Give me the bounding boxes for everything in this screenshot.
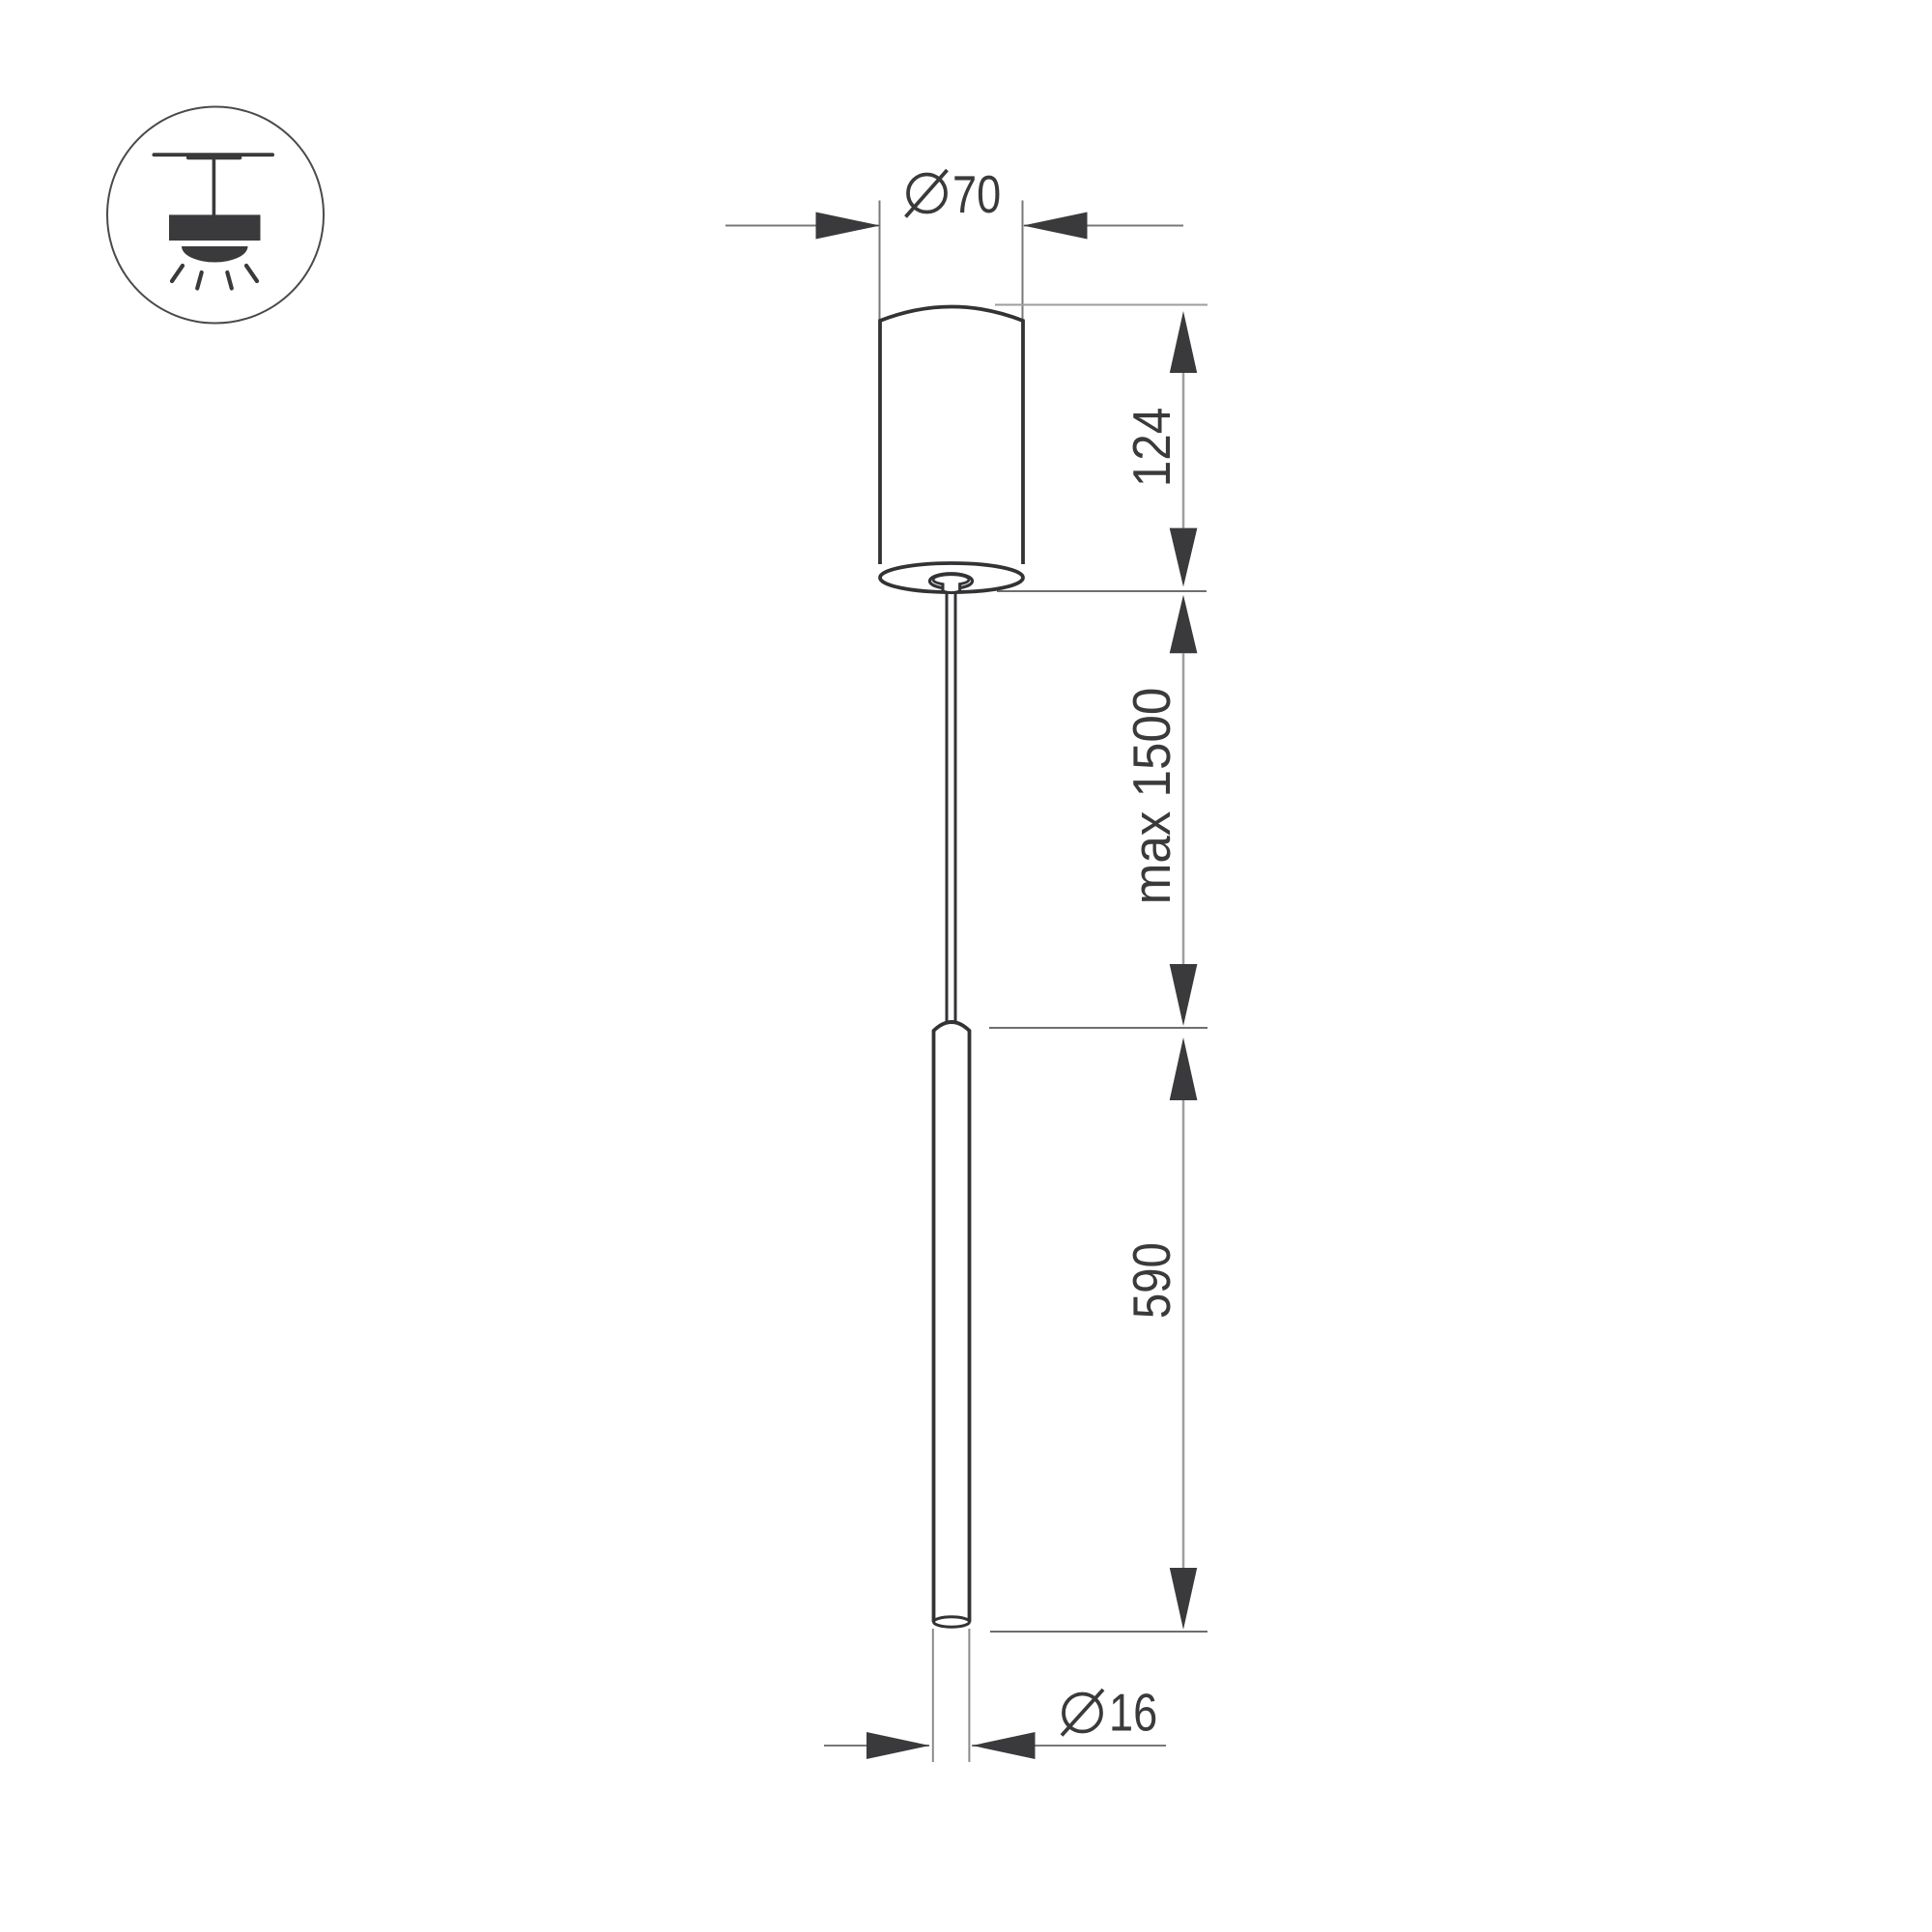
svg-text:16: 16 xyxy=(1109,1682,1157,1742)
svg-text:124: 124 xyxy=(1123,408,1182,488)
svg-text:70: 70 xyxy=(952,164,1001,224)
svg-text:590: 590 xyxy=(1122,1242,1181,1319)
svg-text:max 1500: max 1500 xyxy=(1122,688,1181,905)
